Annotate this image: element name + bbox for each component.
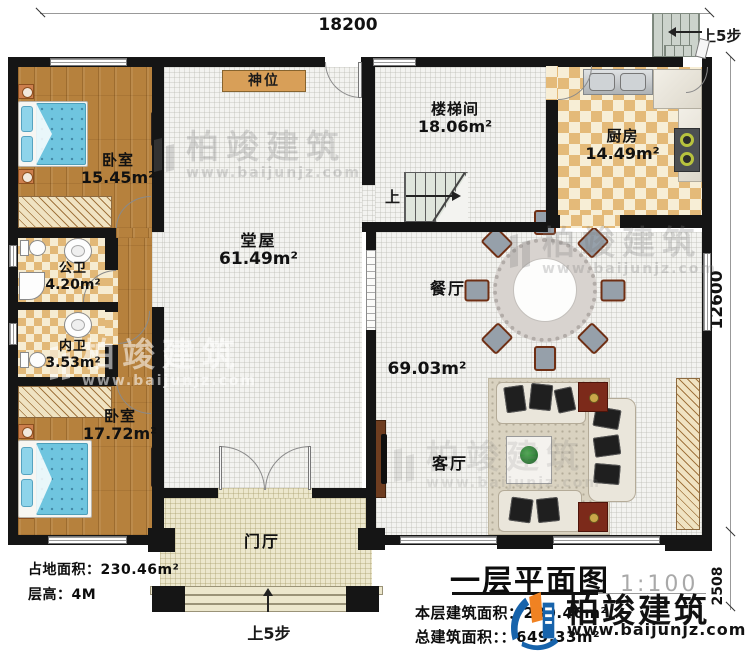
kitchen-label: 厨房 14.49m²	[565, 128, 680, 164]
total-area-label: 总建筑面积：	[415, 628, 501, 646]
toilet-bowl	[29, 240, 46, 256]
wall	[546, 215, 560, 228]
sink-bowl	[620, 73, 646, 91]
brand-logo-icon	[505, 590, 563, 652]
dimension-line-top	[40, 13, 710, 14]
room-name: 门厅	[222, 533, 302, 551]
side-cabinet	[676, 378, 700, 530]
sofa-cushion	[508, 497, 533, 524]
sofa-cushion	[529, 383, 554, 411]
stove-burner	[680, 133, 694, 147]
floor-height-label: 层高：	[28, 587, 72, 603]
end-table	[578, 502, 608, 532]
room-area: 69.03m²	[382, 360, 472, 380]
wall	[8, 377, 116, 386]
porch-post	[346, 586, 379, 612]
stair-direction-arrow	[406, 195, 452, 197]
foyer-label: 门厅	[222, 533, 302, 551]
brand-website: www.baijunjz.com	[567, 620, 746, 639]
toilet-tank	[20, 240, 29, 256]
bedroom2-label: 卧室 17.72m²	[62, 408, 178, 444]
dining-chair	[601, 280, 626, 302]
sofa-cushion	[503, 385, 526, 414]
window	[48, 536, 127, 544]
nightstand	[18, 169, 34, 184]
entrance-steps-label: 上5步	[238, 620, 300, 644]
entrance-arrow	[267, 594, 269, 612]
wall-post	[497, 535, 553, 549]
porch-post	[152, 586, 185, 612]
door-gap	[546, 66, 558, 100]
washbasin-bowl	[71, 319, 85, 331]
shrine-altar: 神位	[222, 70, 306, 92]
room-name: 内卫	[28, 340, 118, 355]
room-area: 18.06m²	[395, 118, 515, 136]
door-leaf	[219, 446, 222, 490]
dining-table	[513, 258, 577, 322]
hall-floor	[164, 67, 362, 488]
door-gap	[362, 185, 375, 222]
wall	[362, 222, 548, 232]
dimension-line-right	[730, 57, 731, 610]
wall	[8, 228, 116, 238]
stair-up-label: 上	[385, 186, 400, 207]
exterior-stairs-arrowhead-icon	[668, 27, 676, 37]
private-bath-label: 内卫 3.53m²	[28, 340, 118, 371]
wardrobe	[18, 196, 112, 228]
sofa-cushion	[593, 434, 622, 457]
washbasin-bowl	[71, 245, 85, 257]
door-gap	[560, 215, 620, 228]
room-area: 15.45m²	[60, 169, 176, 187]
wall-post	[665, 535, 712, 551]
room-name: 堂屋	[196, 232, 321, 250]
exterior-stairs-arrow	[676, 31, 702, 33]
porch-post	[148, 528, 175, 552]
site-area-label: 占地面积：	[28, 562, 101, 578]
room-name: 公卫	[28, 262, 118, 277]
window	[373, 58, 416, 66]
pillow	[21, 479, 33, 507]
site-area-value: 230.46m²	[101, 562, 180, 578]
room-name: 厨房	[565, 128, 680, 145]
floor-height-line: 层高：4M	[28, 584, 96, 604]
wall	[152, 57, 164, 232]
living-label: 客厅	[410, 455, 490, 473]
pillow	[21, 447, 33, 475]
sofa-cushion	[593, 463, 621, 485]
stair-arrowhead-icon	[452, 191, 461, 201]
window	[9, 245, 17, 267]
wall	[8, 57, 18, 545]
floor-plan-canvas: 18200 12600 2508 上5步	[0, 0, 750, 656]
dining-label: 餐厅	[408, 280, 488, 298]
sink-bowl	[589, 73, 615, 91]
room-name: 卧室	[60, 152, 176, 169]
pillow	[21, 136, 33, 162]
floor-height-value: 4M	[72, 587, 97, 603]
opening	[152, 232, 164, 307]
corridor-floor	[112, 228, 152, 378]
room-area: 3.53m²	[28, 355, 118, 371]
window	[9, 323, 17, 345]
plant-icon	[520, 446, 538, 464]
window	[703, 253, 711, 331]
dining-living-area-label: 69.03m²	[382, 360, 472, 380]
wall	[8, 302, 105, 310]
public-bath-label: 公卫 4.20m²	[28, 262, 118, 293]
nightstand	[18, 84, 34, 99]
stove-burner	[680, 152, 694, 166]
exterior-stairs-landing	[664, 45, 692, 57]
porch-post	[358, 528, 385, 550]
bedroom1-label: 卧室 15.45m²	[60, 152, 176, 188]
door-gap	[683, 57, 702, 67]
room-name: 卧室	[62, 408, 178, 425]
stairwell-label: 楼梯间 18.06m²	[395, 101, 515, 137]
room-area: 14.49m²	[565, 145, 680, 163]
room-area: 61.49m²	[196, 250, 321, 270]
door-leaf	[358, 62, 362, 98]
wall	[620, 215, 702, 228]
dimension-top-value: 18200	[298, 15, 398, 35]
door-leaf	[308, 446, 311, 490]
entrance-arrowhead-icon	[263, 588, 273, 596]
dining-chair	[534, 346, 556, 371]
pillow	[21, 106, 33, 132]
dimension-right-porch-value: 2508	[710, 560, 726, 612]
window	[50, 58, 127, 66]
sofa-cushion	[536, 497, 560, 523]
window	[553, 536, 660, 544]
room-name: 楼梯间	[395, 101, 515, 118]
tv-screen	[381, 434, 387, 484]
window	[400, 536, 497, 544]
shrine-label: 神位	[248, 73, 280, 89]
room-name: 餐厅	[408, 280, 488, 298]
site-area-line: 占地面积：230.46m²	[28, 559, 179, 579]
hall-label: 堂屋 61.49m²	[196, 232, 321, 270]
room-area: 17.72m²	[62, 425, 178, 443]
screen-partition	[366, 250, 376, 330]
end-table	[578, 382, 608, 412]
nightstand	[18, 424, 34, 439]
door-gap	[116, 228, 152, 238]
room-name: 客厅	[410, 455, 490, 473]
room-area: 4.20m²	[28, 277, 118, 293]
